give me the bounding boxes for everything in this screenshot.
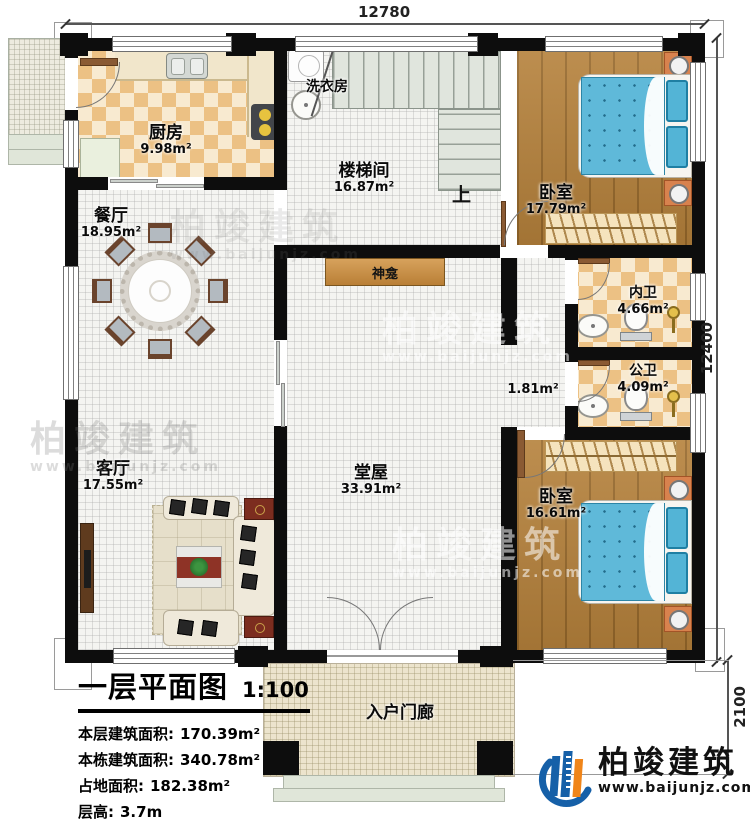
patio-step (8, 149, 68, 165)
room-area: 9.98m² (140, 142, 191, 157)
dimension-line-top (65, 23, 705, 25)
brand-name: 柏竣建筑 (598, 746, 750, 780)
window (295, 36, 478, 52)
nightstand (664, 476, 692, 502)
stat-label: 占地面积: (78, 777, 144, 795)
window (690, 273, 706, 321)
coffee-table (176, 546, 222, 588)
side-table (244, 616, 274, 638)
wall (501, 258, 517, 345)
room-label-living: 客厅 17.55m² (83, 460, 143, 493)
pillar (678, 33, 705, 56)
bed-sheet-fold (644, 503, 664, 601)
room-area: 4.09m² (617, 380, 668, 395)
sofa-pillow (177, 619, 194, 636)
dimension-porch-value: 2100 (731, 686, 749, 728)
room-name: 内卫 (617, 284, 668, 302)
window (63, 266, 79, 400)
stat-value: 340.78m² (180, 751, 260, 769)
room-label-bath-public: 公卫 4.09m² (617, 362, 668, 395)
door-opening (565, 260, 578, 304)
bathroom-sink (577, 314, 609, 338)
room-name: 餐厅 (81, 207, 141, 225)
wall (274, 38, 287, 190)
stat-row: 占地面积:182.38m² (78, 773, 328, 799)
window (113, 648, 235, 664)
stairs-up-label: 上 (452, 180, 471, 207)
dining-table-center (149, 280, 171, 302)
toilet-tank (620, 412, 652, 421)
wall (274, 245, 693, 258)
room-name: 厨房 (140, 124, 191, 142)
fridge-icon (80, 138, 120, 180)
bed-pillow (666, 126, 688, 168)
shower-head-icon (667, 306, 680, 319)
dining-chair (148, 339, 172, 359)
nightstand (664, 180, 692, 206)
stat-label: 本栋建筑面积: (78, 751, 174, 769)
brand-url: www.baijunjz.com (598, 780, 750, 796)
window (690, 62, 706, 162)
stat-value: 170.39m² (180, 725, 260, 743)
room-name: 堂屋 (341, 464, 401, 482)
stat-label: 本层建筑面积: (78, 725, 174, 743)
plan-title: 一层平面图 (78, 664, 228, 706)
window (63, 120, 79, 168)
stat-row: 层高:3.7m (78, 799, 328, 822)
wardrobe (545, 213, 677, 244)
stair-lower-flight (438, 109, 501, 191)
wall (565, 347, 693, 360)
room-label-bedroom-top: 卧室 17.79m² (526, 184, 586, 217)
door-opening (500, 245, 548, 258)
wall (501, 427, 517, 650)
shower-stem (672, 403, 675, 417)
stat-value: 3.7m (120, 803, 162, 821)
sofa-pillow (240, 525, 257, 542)
corridor-floor (517, 258, 565, 440)
hall-floor (287, 258, 517, 650)
sliding-door-panel (156, 184, 204, 188)
room-area: 16.61m² (526, 506, 586, 521)
room-area: 1.81m² (507, 382, 558, 397)
room-name: 卧室 (526, 488, 586, 506)
shower-head-icon (667, 390, 680, 403)
sliding-door-panel (276, 341, 280, 385)
shrine-label: 神龛 (372, 263, 398, 282)
corridor-area-label: 1.81m² (507, 382, 558, 397)
title-block: 一层平面图 1:100 本层建筑面积:170.39m² 本栋建筑面积:340.7… (78, 664, 328, 822)
shower-stem (672, 319, 675, 333)
brand-building-icon (534, 746, 592, 808)
window (545, 36, 663, 52)
wall (274, 258, 287, 650)
window (690, 393, 706, 453)
sofa-pillow (213, 500, 230, 517)
room-label-bedroom-bottom: 卧室 16.61m² (526, 488, 586, 521)
door-leaf (517, 430, 525, 478)
tv-icon (84, 550, 91, 588)
plan-scale: 1:100 (242, 678, 309, 702)
stat-row: 本层建筑面积:170.39m² (78, 721, 328, 747)
stat-label: 层高: (78, 803, 114, 821)
threshold-line (327, 655, 458, 657)
room-area: 33.91m² (341, 482, 401, 497)
room-label-hall: 堂屋 33.91m² (341, 464, 401, 497)
window (112, 36, 232, 52)
room-name: 洗衣房 (306, 78, 348, 96)
wall (565, 427, 693, 440)
room-label-bath-inner: 内卫 4.66m² (617, 284, 668, 317)
room-label-laundry: 洗衣房 (306, 78, 348, 96)
nightstand (664, 606, 692, 632)
room-label-stairwell: 楼梯间 16.87m² (334, 162, 394, 195)
pillar (60, 33, 88, 56)
stat-value: 182.38m² (150, 777, 230, 795)
porch-column (477, 741, 513, 775)
room-name: 公卫 (617, 362, 668, 380)
room-name: 卧室 (526, 184, 586, 202)
sliding-door-panel (110, 179, 158, 183)
bed-pillow (666, 552, 688, 594)
dining-chair (208, 279, 228, 303)
pillar (480, 646, 513, 667)
room-area: 4.66m² (617, 302, 668, 317)
room-name: 客厅 (83, 460, 143, 478)
bed-sheet-fold (644, 77, 664, 175)
room-area: 17.55m² (83, 478, 143, 493)
kitchen-sink (166, 53, 208, 79)
room-label-kitchen: 厨房 9.98m² (140, 124, 191, 157)
side-table (244, 498, 274, 520)
bed-pillow (666, 80, 688, 122)
room-name: 入户门廊 (366, 704, 434, 722)
floor-plan: 神龛 厨房 9.98m² 洗衣房 楼梯间 16.87m² 上 卧室 17.79m… (0, 0, 750, 822)
sofa-pillow (201, 620, 218, 637)
room-area: 17.79m² (526, 202, 586, 217)
dimension-top-value: 12780 (358, 3, 410, 21)
sofa-pillow (239, 549, 256, 566)
room-name: 楼梯间 (334, 162, 394, 180)
title-rule (78, 709, 310, 713)
room-label-porch: 入户门廊 (366, 704, 434, 722)
shrine-console: 神龛 (325, 258, 445, 286)
dimension-right-value: 12400 (698, 322, 716, 374)
dining-chair (148, 223, 172, 243)
room-area: 16.87m² (334, 180, 394, 195)
sofa-pillow (169, 499, 186, 516)
dining-chair (92, 279, 112, 303)
toilet-tank (620, 332, 652, 341)
dimension-line-right (716, 38, 718, 663)
wardrobe (545, 441, 677, 472)
extension-line (513, 660, 729, 661)
bed-pillow (666, 507, 688, 549)
room-label-dining: 餐厅 18.95m² (81, 207, 141, 240)
stat-row: 本栋建筑面积:340.78m² (78, 747, 328, 773)
window (543, 648, 667, 664)
stair-upper-flight (332, 51, 501, 109)
sofa-pillow (191, 498, 208, 515)
side-patio (8, 38, 68, 136)
brand-logo: 柏竣建筑 www.baijunjz.com (534, 746, 750, 808)
sofa-pillow (241, 573, 258, 590)
sliding-door-panel (281, 383, 285, 427)
door-opening (565, 362, 578, 406)
room-area: 18.95m² (81, 225, 141, 240)
